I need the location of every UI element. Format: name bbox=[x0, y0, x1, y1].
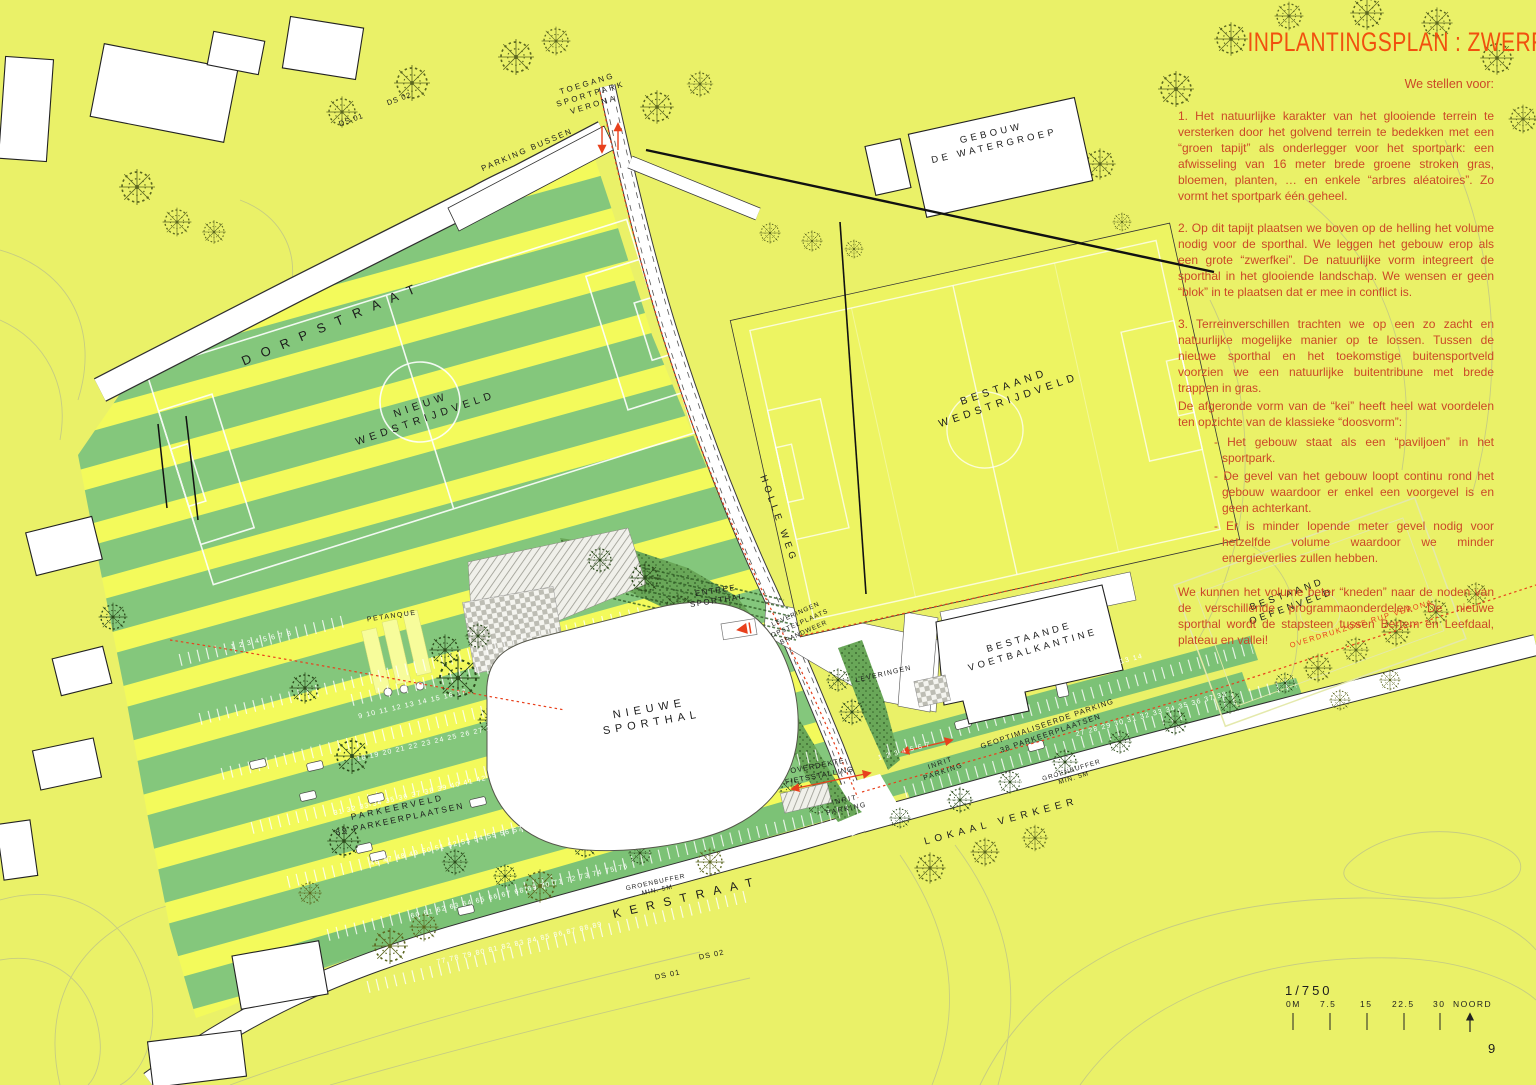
proposal-paragraph-3: 3. Terreinverschillen trachten we op een… bbox=[1178, 316, 1494, 396]
proposal-closing: We kunnen het volume beter “kneden” naar… bbox=[1178, 584, 1494, 648]
svg-text:7.5: 7.5 bbox=[1320, 999, 1336, 1009]
proposal-bullet-3: - Er is minder lopende meter gevel nodig… bbox=[1222, 518, 1494, 566]
page-title: INPLANTINGSPLAN : ZWERFKEI bbox=[1248, 34, 1494, 50]
house bbox=[282, 17, 363, 80]
proposal-bullet-2: - De gevel van het gebouw loopt continu … bbox=[1222, 468, 1494, 516]
proposal-bullet-1: - Het gebouw staat als een “paviljoen” i… bbox=[1222, 434, 1494, 466]
proposal-paragraph-3b: De afgeronde vorm van de “kei” heeft hee… bbox=[1178, 398, 1494, 430]
proposal-text-block: INPLANTINGSPLAN : ZWERFKEI We stellen vo… bbox=[1178, 34, 1494, 664]
north-label: NOORD bbox=[1453, 999, 1492, 1009]
proposal-intro: We stellen voor: bbox=[1178, 76, 1494, 92]
svg-text:22.5: 22.5 bbox=[1392, 999, 1415, 1009]
house bbox=[0, 56, 53, 161]
svg-text:15: 15 bbox=[1360, 999, 1372, 1009]
proposal-paragraph-2: 2. Op dit tapijt plaatsen we boven op de… bbox=[1178, 220, 1494, 300]
proposal-paragraph-1: 1. Het natuurlijke karakter van het gloo… bbox=[1178, 108, 1494, 204]
site-plan-page: DORPSTRAAT PARKING BUSSEN TOEGANG SPORTP… bbox=[0, 0, 1536, 1085]
scale-ratio: 1/750 bbox=[1285, 983, 1333, 998]
page-number: 9 bbox=[1488, 1041, 1495, 1056]
svg-text:30: 30 bbox=[1433, 999, 1445, 1009]
svg-text:0M: 0M bbox=[1286, 999, 1301, 1009]
